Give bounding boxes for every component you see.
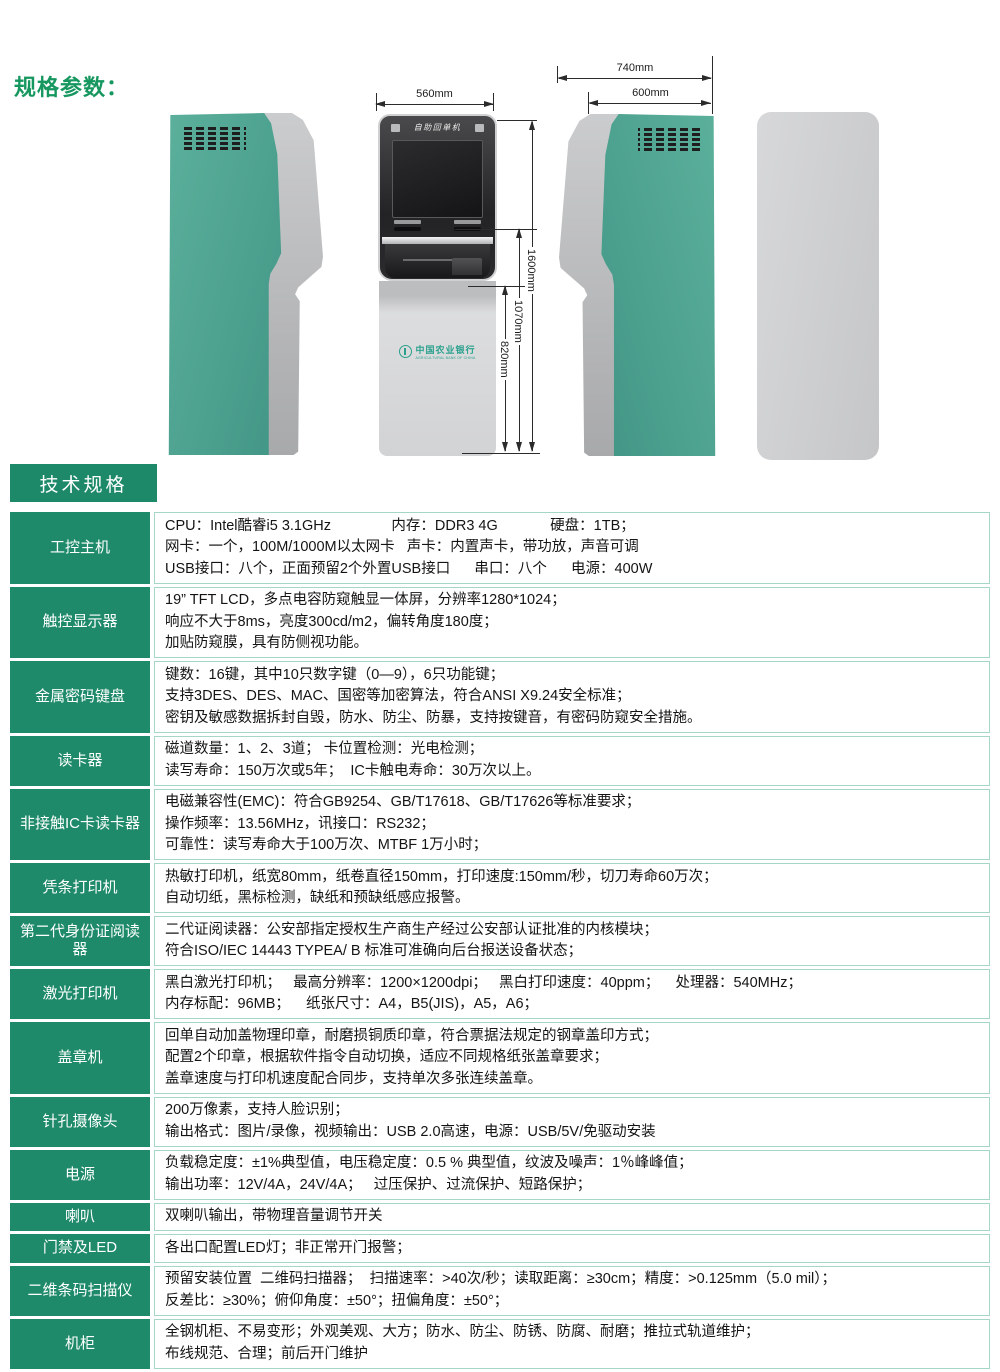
row-content: 全钢机柜、不易变形；外观美观、大方；防水、防尘、防锈、防腐、耐磨；推拉式轨道维护… (154, 1319, 990, 1369)
row-label: 第二代身份证阅读器 (10, 916, 150, 966)
table-row: 触控显示器 19” TFT LCD，多点电容防窥触显一体屏，分辨率1280*10… (10, 587, 990, 659)
row-content: 键数：16键，其中10只数字键（0—9），6只功能键； 支持3DES、DES、M… (154, 661, 990, 733)
silver-trim (382, 237, 493, 244)
section-banner: 技术规格 (10, 464, 157, 502)
row-label: 机柜 (10, 1319, 150, 1369)
row-content: 双喇叭输出，带物理音量调节开关 (154, 1203, 990, 1232)
kiosk-front-view: 自助回单机 中国农业银行 AGRICULTURAL BANK OF CHINA (378, 114, 497, 456)
dim-height-cabinet-label: 820mm (498, 339, 510, 380)
dim-line (377, 104, 493, 105)
row-label: 读卡器 (10, 736, 150, 786)
row-label: 非接触IC卡读卡器 (10, 789, 150, 861)
dim-depth-body-label: 600mm (590, 87, 711, 99)
table-row: 凭条打印机 热敏打印机，纸宽80mm，纸卷直径150mm，打印速度:150mm/… (10, 863, 990, 913)
row-content: 回单自动加盖物理印章，耐磨损铜质印章，符合票据法规定的钢章盖印方式； 配置2个印… (154, 1022, 990, 1094)
table-row: 金属密码键盘 键数：16键，其中10只数字键（0—9），6只功能键； 支持3DE… (10, 661, 990, 733)
console-recess (385, 244, 490, 278)
table-row: 针孔摄像头 200万像素，支持人脸识别； 输出格式：图片/录像，视频输出：USB… (10, 1097, 990, 1147)
abc-bank-logo-icon (399, 345, 412, 358)
touch-screen (392, 140, 483, 218)
table-row: 二维条码扫描仪 预留安装位置 二维码扫描器； 扫描速率：>40次/秒；读取距离：… (10, 1266, 990, 1316)
spec-table: 工控主机 CPU：Intel酷睿i5 3.1GHz 内存：DDR3 4G 硬盘：… (10, 512, 990, 1372)
dim-depth-total-label: 740mm (560, 62, 710, 74)
row-label: 二维条码扫描仪 (10, 1266, 150, 1316)
table-row: 激光打印机 黑白激光打印机； 最高分辨率：1200×1200dpi； 黑白打印速… (10, 969, 990, 1019)
row-content: 黑白激光打印机； 最高分辨率：1200×1200dpi； 黑白打印速度：40pp… (154, 969, 990, 1019)
table-row: 第二代身份证阅读器 二代证阅读器：公安部指定授权生产商生产经过公安部认证批准的内… (10, 916, 990, 966)
arrow-up-icon (516, 228, 522, 238)
speaker-grille-right-icon (475, 124, 484, 132)
dim-front-width-label: 560mm (375, 88, 494, 100)
kiosk-back-view (757, 112, 879, 460)
row-label: 门禁及LED (10, 1234, 150, 1263)
bank-name-en: AGRICULTURAL BANK OF CHINA (415, 356, 475, 360)
kiosk-cabinet: 中国农业银行 AGRICULTURAL BANK OF CHINA (379, 281, 496, 456)
bank-logo: 中国农业银行 AGRICULTURAL BANK OF CHINA (379, 343, 496, 360)
product-views: 自助回单机 中国农业银行 AGRICULTURAL BANK OF CHINA (0, 55, 1000, 475)
arrow-down-icon (516, 442, 522, 452)
table-row: 喇叭 双喇叭输出，带物理音量调节开关 (10, 1203, 990, 1232)
section-title: 技术规格 (39, 470, 127, 497)
document-tray (403, 259, 458, 261)
bank-name-cn: 中国农业银行 (415, 343, 475, 356)
row-content: 19” TFT LCD，多点电容防窥触显一体屏，分辨率1280*1024； 响应… (154, 587, 990, 659)
arrow-up-icon (502, 285, 508, 295)
pin-keypad (452, 258, 482, 275)
row-label: 针孔摄像头 (10, 1097, 150, 1147)
row-content: 电磁兼容性(EMC)：符合GB9254、GB/T17618、GB/T17626等… (154, 789, 990, 861)
row-content: 二代证阅读器：公安部指定授权生产商生产经过公安部认证批准的内核模块； 符合ISO… (154, 916, 990, 966)
table-row: 盖章机 回单自动加盖物理印章，耐磨损铜质印章，符合票据法规定的钢章盖印方式； 配… (10, 1022, 990, 1094)
arrow-left-icon (588, 100, 598, 106)
arrow-left-icon (557, 75, 567, 81)
vent-grille-icon (184, 127, 246, 152)
table-row: 机柜 全钢机柜、不易变形；外观美观、大方；防水、防尘、防锈、防腐、耐磨；推拉式轨… (10, 1319, 990, 1369)
row-content: 200万像素，支持人脸识别； 输出格式：图片/录像，视频输出：USB 2.0高速… (154, 1097, 990, 1147)
table-row: 工控主机 CPU：Intel酷睿i5 3.1GHz 内存：DDR3 4G 硬盘：… (10, 512, 990, 584)
arrow-down-icon (529, 442, 535, 452)
table-row: 门禁及LED 各出口配置LED灯；非正常开门报警； (10, 1234, 990, 1263)
kiosk-side-view-right (559, 114, 716, 456)
arrow-down-icon (502, 442, 508, 452)
row-label: 盖章机 (10, 1022, 150, 1094)
row-label: 金属密码键盘 (10, 661, 150, 733)
dim-line (590, 103, 711, 104)
arrow-right-icon (701, 100, 711, 106)
row-content: 磁道数量：1、2、3道； 卡位置检测：光电检测； 读写寿命：150万次或5年； … (154, 736, 990, 786)
row-label: 电源 (10, 1150, 150, 1200)
row-label: 激光打印机 (10, 969, 150, 1019)
row-content: 各出口配置LED灯；非正常开门报警； (154, 1234, 990, 1263)
kiosk-head-unit: 自助回单机 (378, 114, 497, 281)
arrow-up-icon (529, 120, 535, 130)
table-row: 电源 负载稳定度：±1%典型值，电压稳定度：0.5 % 典型值，纹波及噪声：1％… (10, 1150, 990, 1200)
row-label: 工控主机 (10, 512, 150, 584)
arrow-right-icon (702, 75, 712, 81)
vent-grille-icon (638, 128, 700, 153)
row-content: 热敏打印机，纸宽80mm，纸卷直径150mm，打印速度:150mm/秒，切刀寿命… (154, 863, 990, 913)
row-content: 预留安装位置 二维码扫描器； 扫描速率：>40次/秒；读取距离：≥30cm；精度… (154, 1266, 990, 1316)
dim-height-console-label: 1070mm (512, 298, 524, 345)
row-content: 负载稳定度：±1%典型值，电压稳定度：0.5 % 典型值，纹波及噪声：1％峰峰值… (154, 1150, 990, 1200)
row-content: CPU：Intel酷睿i5 3.1GHz 内存：DDR3 4G 硬盘：1TB； … (154, 512, 990, 584)
row-label: 触控显示器 (10, 587, 150, 659)
dim-line (559, 78, 711, 79)
row-label: 凭条打印机 (10, 863, 150, 913)
table-row: 读卡器 磁道数量：1、2、3道； 卡位置检测：光电检测； 读写寿命：150万次或… (10, 736, 990, 786)
dim-height-total-label: 1600mm (525, 247, 537, 294)
table-row: 非接触IC卡读卡器 电磁兼容性(EMC)：符合GB9254、GB/T17618、… (10, 789, 990, 861)
row-label: 喇叭 (10, 1203, 150, 1232)
receipt-slot-left (394, 220, 421, 231)
kiosk-side-view-left (168, 113, 323, 455)
